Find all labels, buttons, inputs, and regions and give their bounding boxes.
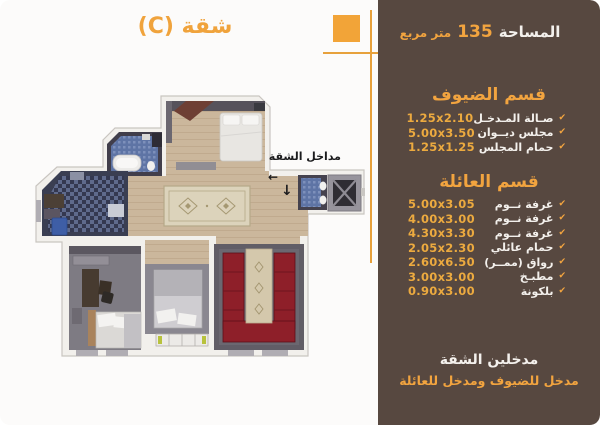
room-dimension: 1.25x2.10 — [407, 111, 474, 125]
entrance-label: مداخل الشقة — [265, 150, 341, 163]
spec-row: ✔غرفة نــوم 5.00x3.05 — [378, 197, 600, 212]
hallway — [128, 171, 308, 236]
info-panel: المساحة 135 متر مربع قسم الضيوف ✔صـالة ا… — [378, 0, 600, 425]
apartment-title: شقة (C) — [120, 14, 250, 39]
room-bedroom-top — [166, 101, 265, 173]
spec-row: ✔غرفة نــوم 4.00x3.00 — [378, 212, 600, 227]
spec-row: ✔حمام عائلي 2.05x2.30 — [378, 241, 600, 256]
check-icon: ✔ — [558, 272, 566, 281]
room-name: غرفة نــوم — [495, 227, 554, 240]
area-unit: متر مربع — [400, 26, 452, 40]
room-majlis — [214, 232, 304, 350]
room-dimension: 3.00x3.00 — [408, 270, 475, 284]
check-icon: ✔ — [558, 143, 566, 152]
check-icon: ✔ — [558, 243, 566, 252]
accent-vertical-line — [370, 10, 372, 263]
room-name: غرفة نــوم — [495, 212, 554, 225]
elevator — [328, 175, 365, 211]
room-name: بلكونة — [521, 285, 554, 298]
check-icon: ✔ — [558, 128, 566, 137]
entrances-title: مدخلين الشقة — [378, 352, 600, 368]
room-name: غرفة نــوم — [495, 198, 554, 211]
majlis-table — [246, 249, 272, 323]
section-title-guests: قسم الضيوف — [378, 85, 600, 105]
family-rows: ✔غرفة نــوم 5.00x3.05 ✔غرفة نــوم 4.00x3… — [378, 197, 600, 299]
balcony — [156, 334, 208, 346]
room-name: مجلس ديــوان — [477, 126, 553, 139]
floor-plan — [18, 76, 370, 368]
toilet — [147, 161, 155, 171]
spec-row: ✔حمام المجلس 1.25x1.25 — [378, 140, 600, 155]
room-dimension: 2.60x6.50 — [408, 255, 475, 269]
spec-row: ✔مطبـخ 3.00x3.00 — [378, 270, 600, 285]
room-name: مطبـخ — [520, 270, 554, 283]
floor-plan-svg — [18, 76, 370, 368]
spec-row: ✔رواق (ممــر) 2.60x6.50 — [378, 255, 600, 270]
room-kitchen — [42, 171, 128, 236]
room-dimension: 4.00x3.00 — [408, 212, 475, 226]
spec-row: ✔بلكونة 0.90x3.00 — [378, 284, 600, 299]
desk — [82, 269, 99, 307]
room-dimension: 1.25x1.25 — [408, 140, 475, 154]
entrance-arrow-down-icon: ↓ — [281, 183, 293, 199]
entrances-subtitle: مدخل للضيوف ومدخل للعائلة — [378, 373, 600, 388]
room-name: حمام عائلي — [491, 241, 554, 254]
entrance-bathroom — [298, 175, 327, 210]
room-dimension: 4.30x3.30 — [408, 226, 475, 240]
spec-row: ✔مجلس ديــوان 5.00x3.50 — [378, 126, 600, 141]
room-bedroom-middle — [145, 240, 209, 346]
area-value: 135 — [457, 22, 493, 42]
room-dimension: 5.00x3.50 — [408, 126, 475, 140]
entrance-arrow-left-icon: ← — [268, 170, 278, 184]
section-title-family: قسم العائلة — [378, 172, 600, 192]
room-name: صـالة المـدخـل — [473, 112, 553, 125]
room-dimension: 2.05x2.30 — [408, 241, 475, 255]
flyer: شقة (C) — [0, 0, 600, 425]
room-bathroom-guest — [107, 132, 162, 176]
room-name: رواق (ممــر) — [484, 256, 553, 269]
refrigerator — [52, 218, 67, 235]
room-bedroom-left — [69, 246, 141, 350]
guests-rows: ✔صـالة المـدخـل 1.25x2.10 ✔مجلس ديــوان … — [378, 111, 600, 155]
check-icon: ✔ — [558, 229, 566, 238]
spec-row: ✔غرفة نــوم 4.30x3.30 — [378, 226, 600, 241]
accent-square — [333, 15, 360, 42]
area-header: المساحة 135 متر مربع — [378, 22, 600, 42]
spec-row: ✔صـالة المـدخـل 1.25x2.10 — [378, 111, 600, 126]
room-dimension: 5.00x3.05 — [408, 197, 475, 211]
check-icon: ✔ — [558, 200, 566, 209]
check-icon: ✔ — [558, 114, 566, 123]
area-label: المساحة — [499, 23, 561, 41]
check-icon: ✔ — [558, 287, 566, 296]
room-name: حمام المجلس — [479, 141, 554, 154]
check-icon: ✔ — [558, 258, 566, 267]
room-dimension: 0.90x3.00 — [408, 284, 475, 298]
check-icon: ✔ — [558, 214, 566, 223]
